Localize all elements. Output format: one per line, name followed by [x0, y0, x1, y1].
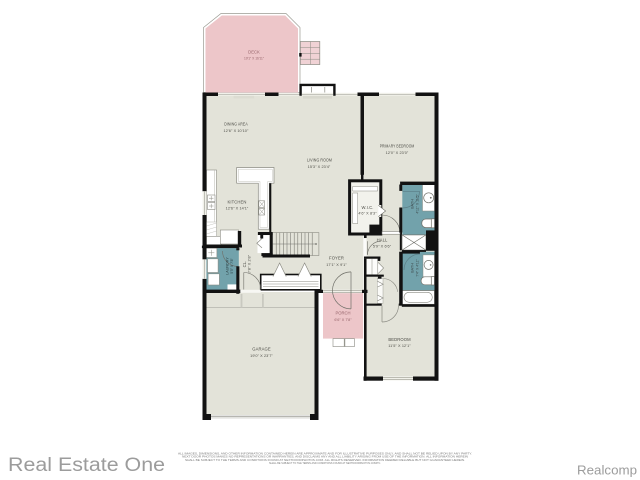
svg-text:DINING AREA: DINING AREA [224, 122, 248, 127]
svg-text:12'6" X 10'10": 12'6" X 10'10" [224, 129, 250, 133]
svg-text:GARAGE: GARAGE [252, 347, 271, 352]
svg-text:FOYER: FOYER [329, 256, 344, 261]
svg-text:Realcomp: Realcomp [577, 463, 637, 478]
svg-text:PRIMARY BEDROOM: PRIMARY BEDROOM [380, 144, 415, 149]
svg-text:PORCH: PORCH [335, 311, 350, 316]
svg-text:7'4" X 4'11": 7'4" X 4'11" [416, 258, 420, 276]
svg-text:15'3" X 23'4": 15'3" X 23'4" [308, 165, 331, 169]
svg-text:5'5" X 7'8": 5'5" X 7'8" [230, 258, 234, 274]
svg-text:19'1" X 16'11": 19'1" X 16'11" [244, 57, 265, 61]
svg-text:KITCHEN: KITCHEN [227, 200, 246, 205]
svg-text:SHALL BE SUBJECT TO THE TERMS: SHALL BE SUBJECT TO THE TERMS AND CONDIT… [269, 461, 381, 465]
svg-text:BATH: BATH [410, 263, 415, 273]
svg-text:19'0" X 23'7": 19'0" X 23'7" [250, 354, 273, 358]
svg-text:W.I.C.: W.I.C. [362, 205, 374, 210]
svg-text:7'8" X 2'8": 7'8" X 2'8" [247, 254, 251, 273]
svg-text:HALL: HALL [377, 238, 388, 243]
svg-text:DECK: DECK [248, 50, 260, 55]
svg-text:4'6" X 8'3": 4'6" X 8'3" [358, 212, 377, 216]
svg-text:4'11" X 11'5": 4'11" X 11'5" [416, 194, 420, 214]
svg-text:17'1" X 9'1": 17'1" X 9'1" [326, 263, 347, 267]
svg-text:BEDROOM: BEDROOM [388, 337, 411, 342]
svg-text:Real Estate One: Real Estate One [8, 455, 165, 476]
svg-text:LAUNDRY: LAUNDRY [226, 257, 230, 275]
svg-text:CL.: CL. [242, 261, 247, 268]
svg-text:5'9" X 6'6": 5'9" X 6'6" [373, 245, 392, 249]
svg-text:12'0" X 23'0": 12'0" X 23'0" [386, 151, 409, 155]
svg-text:6'6" X 7'8": 6'6" X 7'8" [334, 318, 352, 322]
svg-text:LIVING ROOM: LIVING ROOM [307, 158, 332, 163]
svg-text:BATH: BATH [410, 199, 415, 209]
svg-text:11'5" X 12'1": 11'5" X 12'1" [388, 344, 411, 348]
svg-text:12'6" X 14'1": 12'6" X 14'1" [226, 207, 249, 211]
